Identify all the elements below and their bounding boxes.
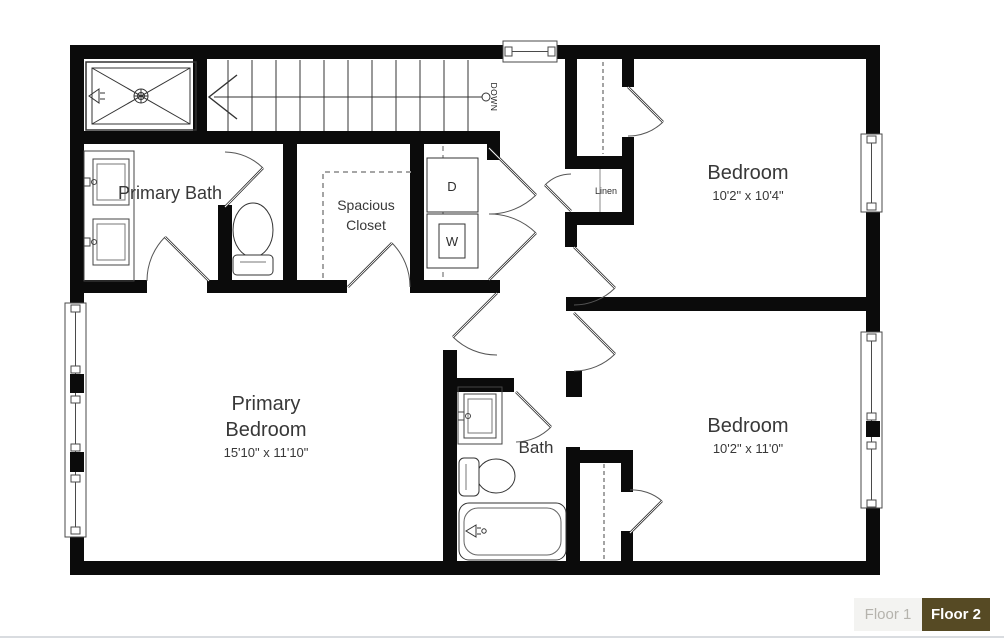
room-label-bedroom-bottom: Bedroom (707, 413, 788, 439)
stairs (209, 60, 490, 131)
tab-floor-2[interactable]: Floor 2 (922, 598, 990, 631)
floorplan-viewer: Primary Bath Spacious Closet D W Linen D… (0, 0, 1004, 643)
room-label-spacious-closet: Spacious Closet (321, 195, 411, 235)
dryer-label: D (447, 179, 456, 194)
room-label-bedroom-top: Bedroom (707, 160, 788, 186)
stairs-down-label: DOWN (487, 76, 499, 118)
linen-label: Linen (595, 186, 617, 196)
toilet-bath (459, 458, 515, 496)
room-label-primary-bedroom: Primary Bedroom (196, 391, 336, 443)
shower (86, 62, 196, 130)
room-label-primary-bath: Primary Bath (110, 181, 230, 206)
washer-label: W (446, 234, 458, 249)
floor-selector: Floor 1 Floor 2 (854, 598, 990, 631)
bath-vanity (458, 387, 502, 444)
toilet-primary (233, 203, 273, 275)
room-label-bath: Bath (519, 435, 554, 461)
floor-plan-drawing (0, 0, 1004, 643)
room-dims-primary-bedroom: 15'10" x 11'10" (224, 445, 309, 460)
room-dims-bedroom-top: 10'2" x 10'4" (712, 188, 783, 203)
room-dims-bedroom-bottom: 10'2" x 11'0" (713, 441, 783, 456)
tab-floor-1[interactable]: Floor 1 (854, 598, 922, 631)
bathtub (459, 503, 566, 560)
bottom-divider (0, 636, 1004, 638)
primary-bath-vanity (84, 151, 134, 281)
washer-dryer (427, 146, 478, 277)
